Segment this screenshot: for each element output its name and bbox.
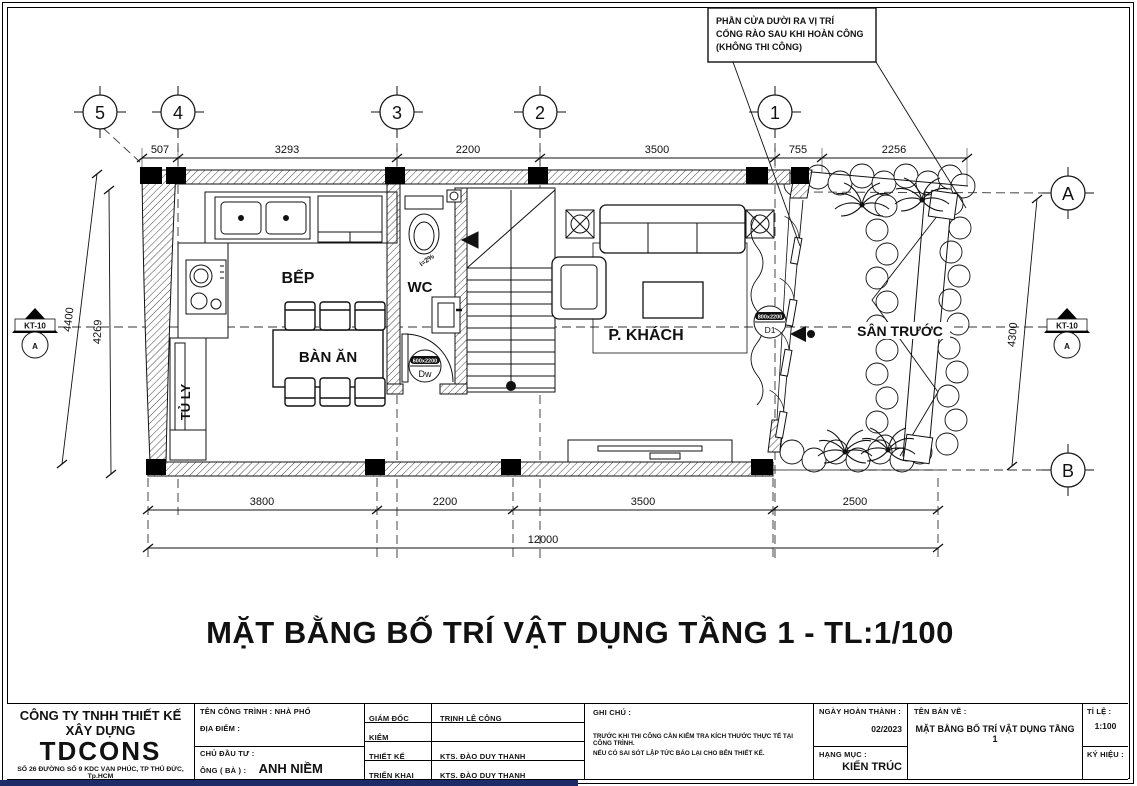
deploy-name: KTS. ĐÀO DUY THANH [440,771,526,780]
grid-bubble-B: B [1062,461,1074,481]
design-label: THIẾT KẾ [369,752,405,761]
scale-cell: TỈ LỆ : 1:100 [1083,704,1128,747]
drawing-title: MẶT BẰNG BỐ TRÍ VẬT DỤNG TẦNG 1 - TL:1/1… [150,615,1010,651]
note-line-3: (KHÔNG THI CÔNG) [716,41,802,52]
drawing-name-label: TÊN BẢN VẼ : [914,707,1076,716]
room-label-yard: SÂN TRƯỚC [857,322,943,339]
investor-label: CHỦ ĐẦU TƯ : [200,749,359,758]
speaker-left-icon [566,210,594,238]
check-label-cell: KIỂM [365,723,432,742]
dim-top-2200: 2200 [456,144,480,156]
director-label-cell: GIÁM ĐỐC [365,704,432,723]
stairs [462,188,555,392]
note-line-2: CỔNG RÀO SAU KHI HOÀN CÔNG [716,28,864,39]
deploy-label: TRIỂN KHAI [369,771,414,780]
dim-top-2256: 2256 [882,144,906,156]
drawing-name-value: MẶT BẰNG BỐ TRÍ VẬT DỤNG TẦNG 1 [914,724,1076,744]
company-type: CÔNG TY TNHH THIẾT KẾ XÂY DỰNG [7,708,194,738]
section-marker-letter: A [32,342,38,351]
symbol-cell: KÝ HIỆU : [1083,747,1128,780]
dim-left-4269: 4269 [92,319,105,344]
scale-label: TỈ LỆ : [1087,707,1124,716]
symbol-label: KÝ HIỆU : [1087,750,1124,759]
date-cell: NGÀY HOÀN THÀNH : 02/2023 [814,704,908,747]
dim-bot-3800: 3800 [250,496,274,508]
location-label: ĐỊA ĐIỂM : [200,724,359,733]
main-door-code: D1 [765,325,776,335]
director-name: TRỊNH LÊ CÔNG [440,714,502,723]
company-address: SỐ 26 ĐƯỜNG SỐ 9 KDC VẠN PHÚC, TP THỦ ĐỨ… [7,766,194,780]
floor-plan-canvas: BẾP TỦ LY BÀN ĂN WC i=2% 600x2200 Dw [0,0,1137,700]
dim-bot-2500: 2500 [843,496,867,508]
company-cell: CÔNG TY TNHH THIẾT KẾ XÂY DỰNG TDCONS SỐ… [7,704,195,780]
room-label-living: P. KHÁCH [608,325,683,344]
dim-top-3293: 3293 [275,144,299,156]
room-label-kitchen: BẾP [282,268,315,287]
check-label: KIỂM [369,733,389,742]
slope-tag: i=2% [419,253,437,268]
room-label-wc: WC [408,279,433,296]
date-label: NGÀY HOÀN THÀNH : [819,707,902,716]
notes-label: GHI CHÚ : [593,708,805,717]
deploy-name-cell: KTS. ĐÀO DUY THANH [432,761,585,780]
company-name: TDCONS [7,738,194,764]
owner-name: ANH NIỀM [259,761,323,776]
drawing-name-cell: TÊN BẢN VẼ : MẶT BẰNG BỐ TRÍ VẬT DỤNG TẦ… [908,704,1083,780]
deploy-label-cell: TRIỂN KHAI [365,761,432,780]
section-marker-left: KT-10 A [12,308,58,358]
section-marker-code: KT-10 [24,322,46,331]
director-name-cell: TRỊNH LÊ CÔNG [432,704,585,723]
section-marker-letter: A [1064,342,1070,351]
grid-bubble-3: 3 [392,103,402,123]
dim-top-3500: 3500 [645,144,669,156]
notes-line-1: TRƯỚC KHI THI CÔNG CẦN KIỂM TRA KÍCH THƯ… [593,733,805,747]
design-name: KTS. ĐÀO DUY THANH [440,752,526,761]
check-name-cell [432,723,585,742]
title-block: CÔNG TY TNHH THIẾT KẾ XÂY DỰNG TDCONS SỐ… [7,703,1128,779]
grid-bubble-A: A [1062,184,1074,204]
main-door-size: 800x2200 [758,315,782,321]
section-marker-right: KT-10 A [1044,308,1090,358]
category-value: KIẾN TRÚC [819,761,902,773]
dim-bot-3500: 3500 [631,496,655,508]
drawing-sheet: { "page": { "title": "MẶT BẰNG BỐ TRÍ VẬ… [0,0,1137,786]
owner-label: ÔNG ( BÀ ) : [200,766,246,775]
room-label-cabinet: TỦ LY [178,383,193,420]
project-cell: TÊN CÔNG TRÌNH : NHÀ PHỐ ĐỊA ĐIỂM : [195,704,365,747]
grid-bubble-5: 5 [95,103,105,123]
dim-top-507: 507 [151,144,169,156]
grid-bubble-1: 1 [770,103,780,123]
design-name-cell: KTS. ĐÀO DUY THANH [432,742,585,761]
investor-cell: CHỦ ĐẦU TƯ : ÔNG ( BÀ ) : ANH NIỀM [195,747,365,780]
notes-line-2: NẾU CÓ SAI SÓT LẬP TỨC BÁO LẠI CHO BÊN T… [593,750,805,757]
date-value: 02/2023 [819,724,902,734]
wc-door-size: 600x2200 [413,359,437,365]
notes-cell: GHI CHÚ : TRƯỚC KHI THI CÔNG CẦN KIỂM TR… [585,704,814,780]
design-label-cell: THIẾT KẾ [365,742,432,761]
dim-left-4400: 4400 [62,307,77,333]
dim-bot-2200: 2200 [433,496,457,508]
dim-right-4300: 4300 [1006,322,1020,347]
speaker-right-icon [746,210,774,238]
bottom-blue-strip [0,780,578,786]
grid-bubble-4: 4 [173,103,183,123]
section-marker-code: KT-10 [1056,322,1078,331]
dim-top-755: 755 [789,144,807,156]
wc-door-code: Dw [419,369,432,379]
note-line-1: PHẦN CỬA DƯỜI RA VỊ TRÍ [716,15,834,26]
room-label-dining: BÀN ĂN [299,349,357,366]
grid-bubble-2: 2 [535,103,545,123]
category-cell: HẠNG MỤC : KIẾN TRÚC [814,747,908,780]
category-label: HẠNG MỤC : [819,750,902,759]
director-label: GIÁM ĐỐC [369,714,409,723]
project-name-label: TÊN CÔNG TRÌNH : NHÀ PHỐ [200,707,359,716]
scale-value: 1:100 [1087,721,1124,731]
dim-bot-total: 12000 [528,534,559,546]
